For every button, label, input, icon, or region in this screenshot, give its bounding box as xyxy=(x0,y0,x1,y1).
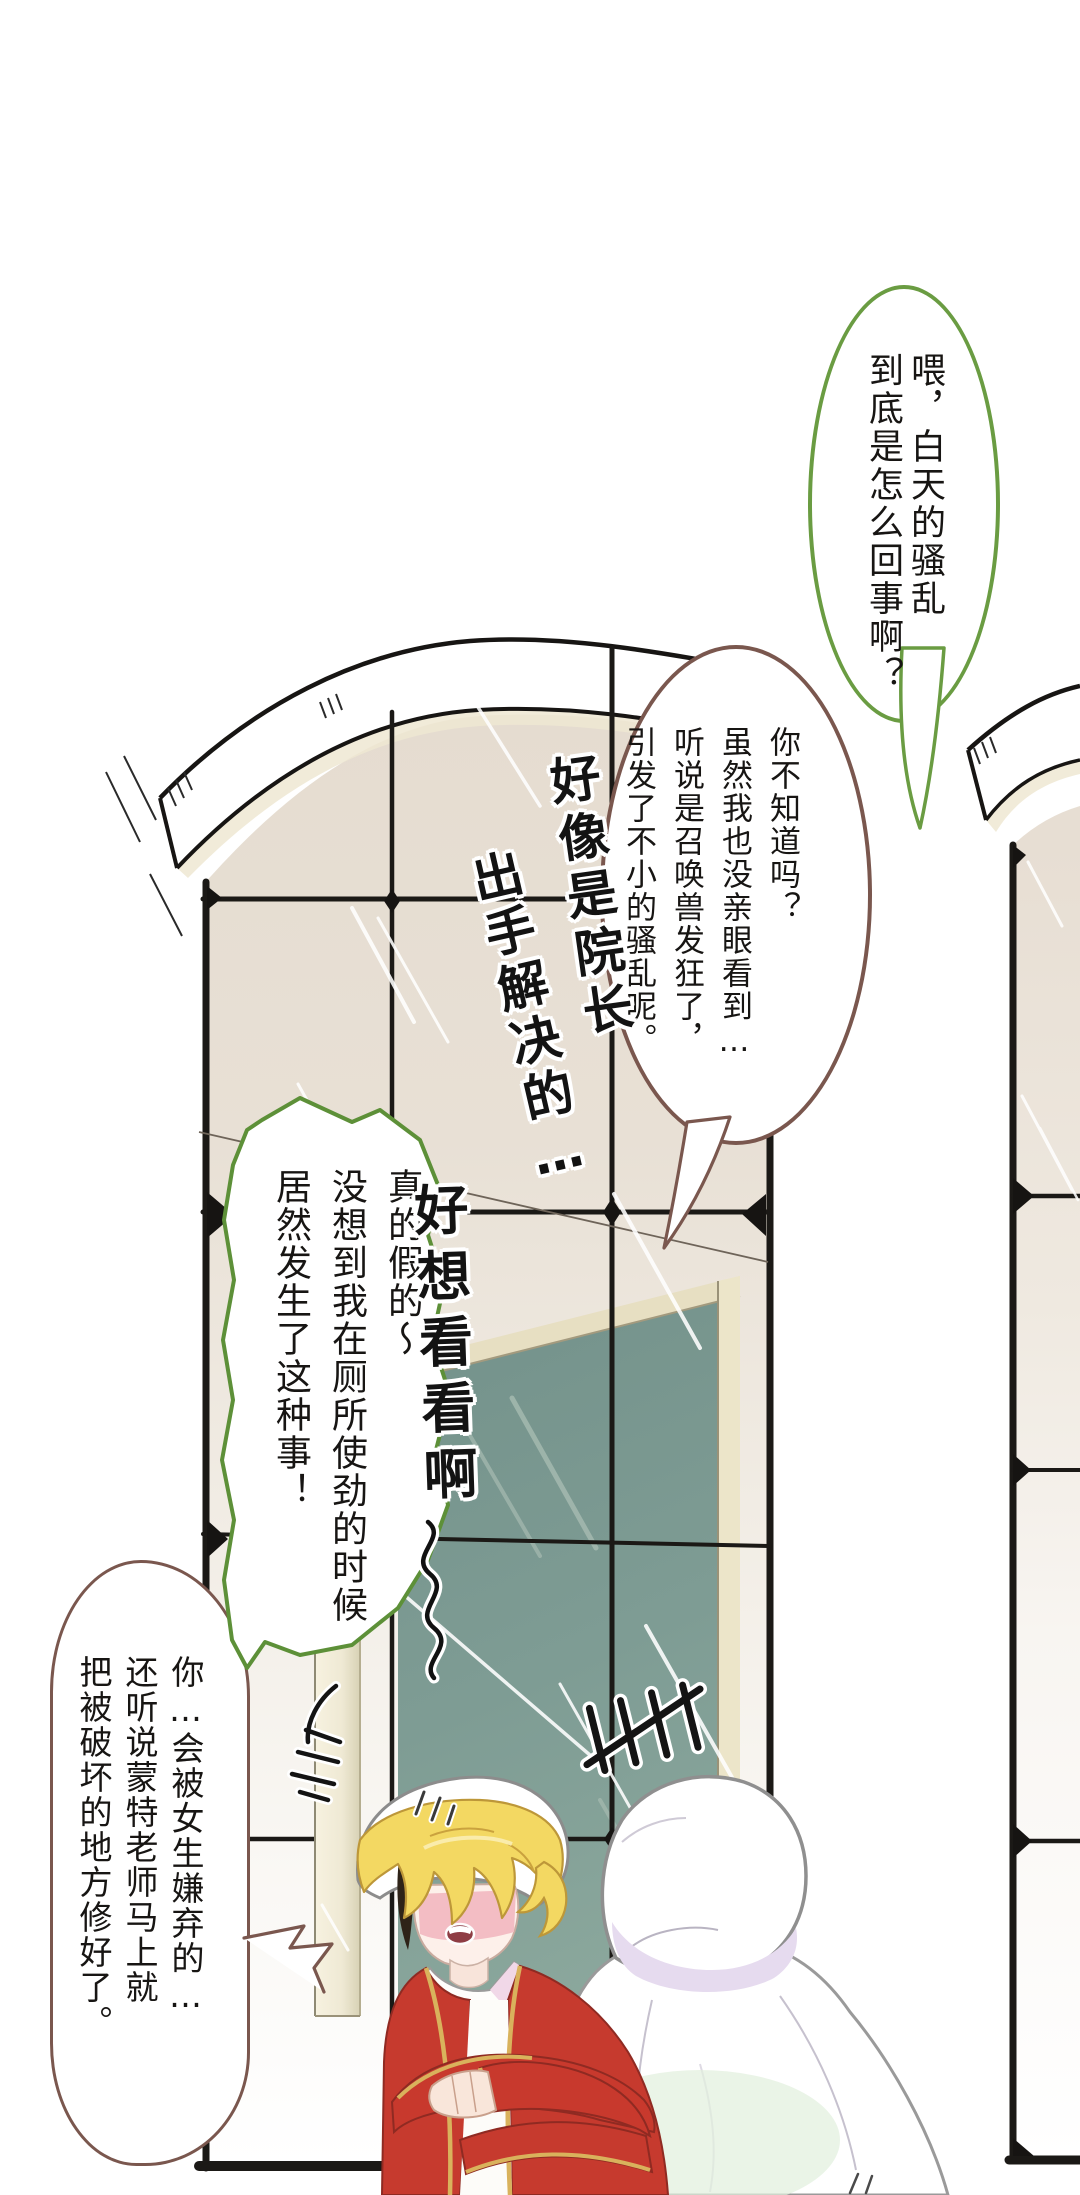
bubble-column: 你不知道吗？ xyxy=(758,726,806,1066)
bubble-column: 居然发生了这种事！ xyxy=(262,1168,318,1638)
bubble-column: 到底是怎么回事啊？ xyxy=(862,352,904,704)
bubble-column: 喂，白天的骚乱 xyxy=(904,352,946,704)
wavy-line-icon xyxy=(390,1516,480,1686)
bubble-column: 把被破坏的地方修好了。 xyxy=(70,1655,116,2055)
bubble-column: 还听说蒙特老师马上就 xyxy=(116,1655,162,2055)
speech-bubble-2-tail xyxy=(640,1100,750,1265)
bubble-column: 没想到我在厕所使劲的时候 xyxy=(318,1168,374,1638)
speech-bubble-1-text: 喂，白天的骚乱 到底是怎么回事啊？ xyxy=(858,352,946,704)
speech-bubble-4-text: 你…会被女生嫌弃的… 还听说蒙特老师马上就 把被破坏的地方修好了。 xyxy=(66,1655,208,2055)
bubble-column: 听说是召唤兽发狂了， xyxy=(662,726,710,1066)
bubble-column: 虽然我也没亲眼看到… xyxy=(710,726,758,1066)
speech-bubble-4-tail xyxy=(236,1916,346,2016)
window-arch-right xyxy=(968,686,1080,832)
bubble-column: 你…会被女生嫌弃的… xyxy=(162,1655,208,2055)
manga-page: 你…会被女生嫌弃的… 还听说蒙特老师马上就 把被破坏的地方修好了。 真的假的～ … xyxy=(0,0,1080,2195)
speech-bubble-2-text: 你不知道吗？ 虽然我也没亲眼看到… 听说是召唤兽发狂了， 引发了不小的骚乱呢。 xyxy=(614,726,806,1066)
handwritten-note-2: 好想看看啊 xyxy=(396,1181,486,1514)
